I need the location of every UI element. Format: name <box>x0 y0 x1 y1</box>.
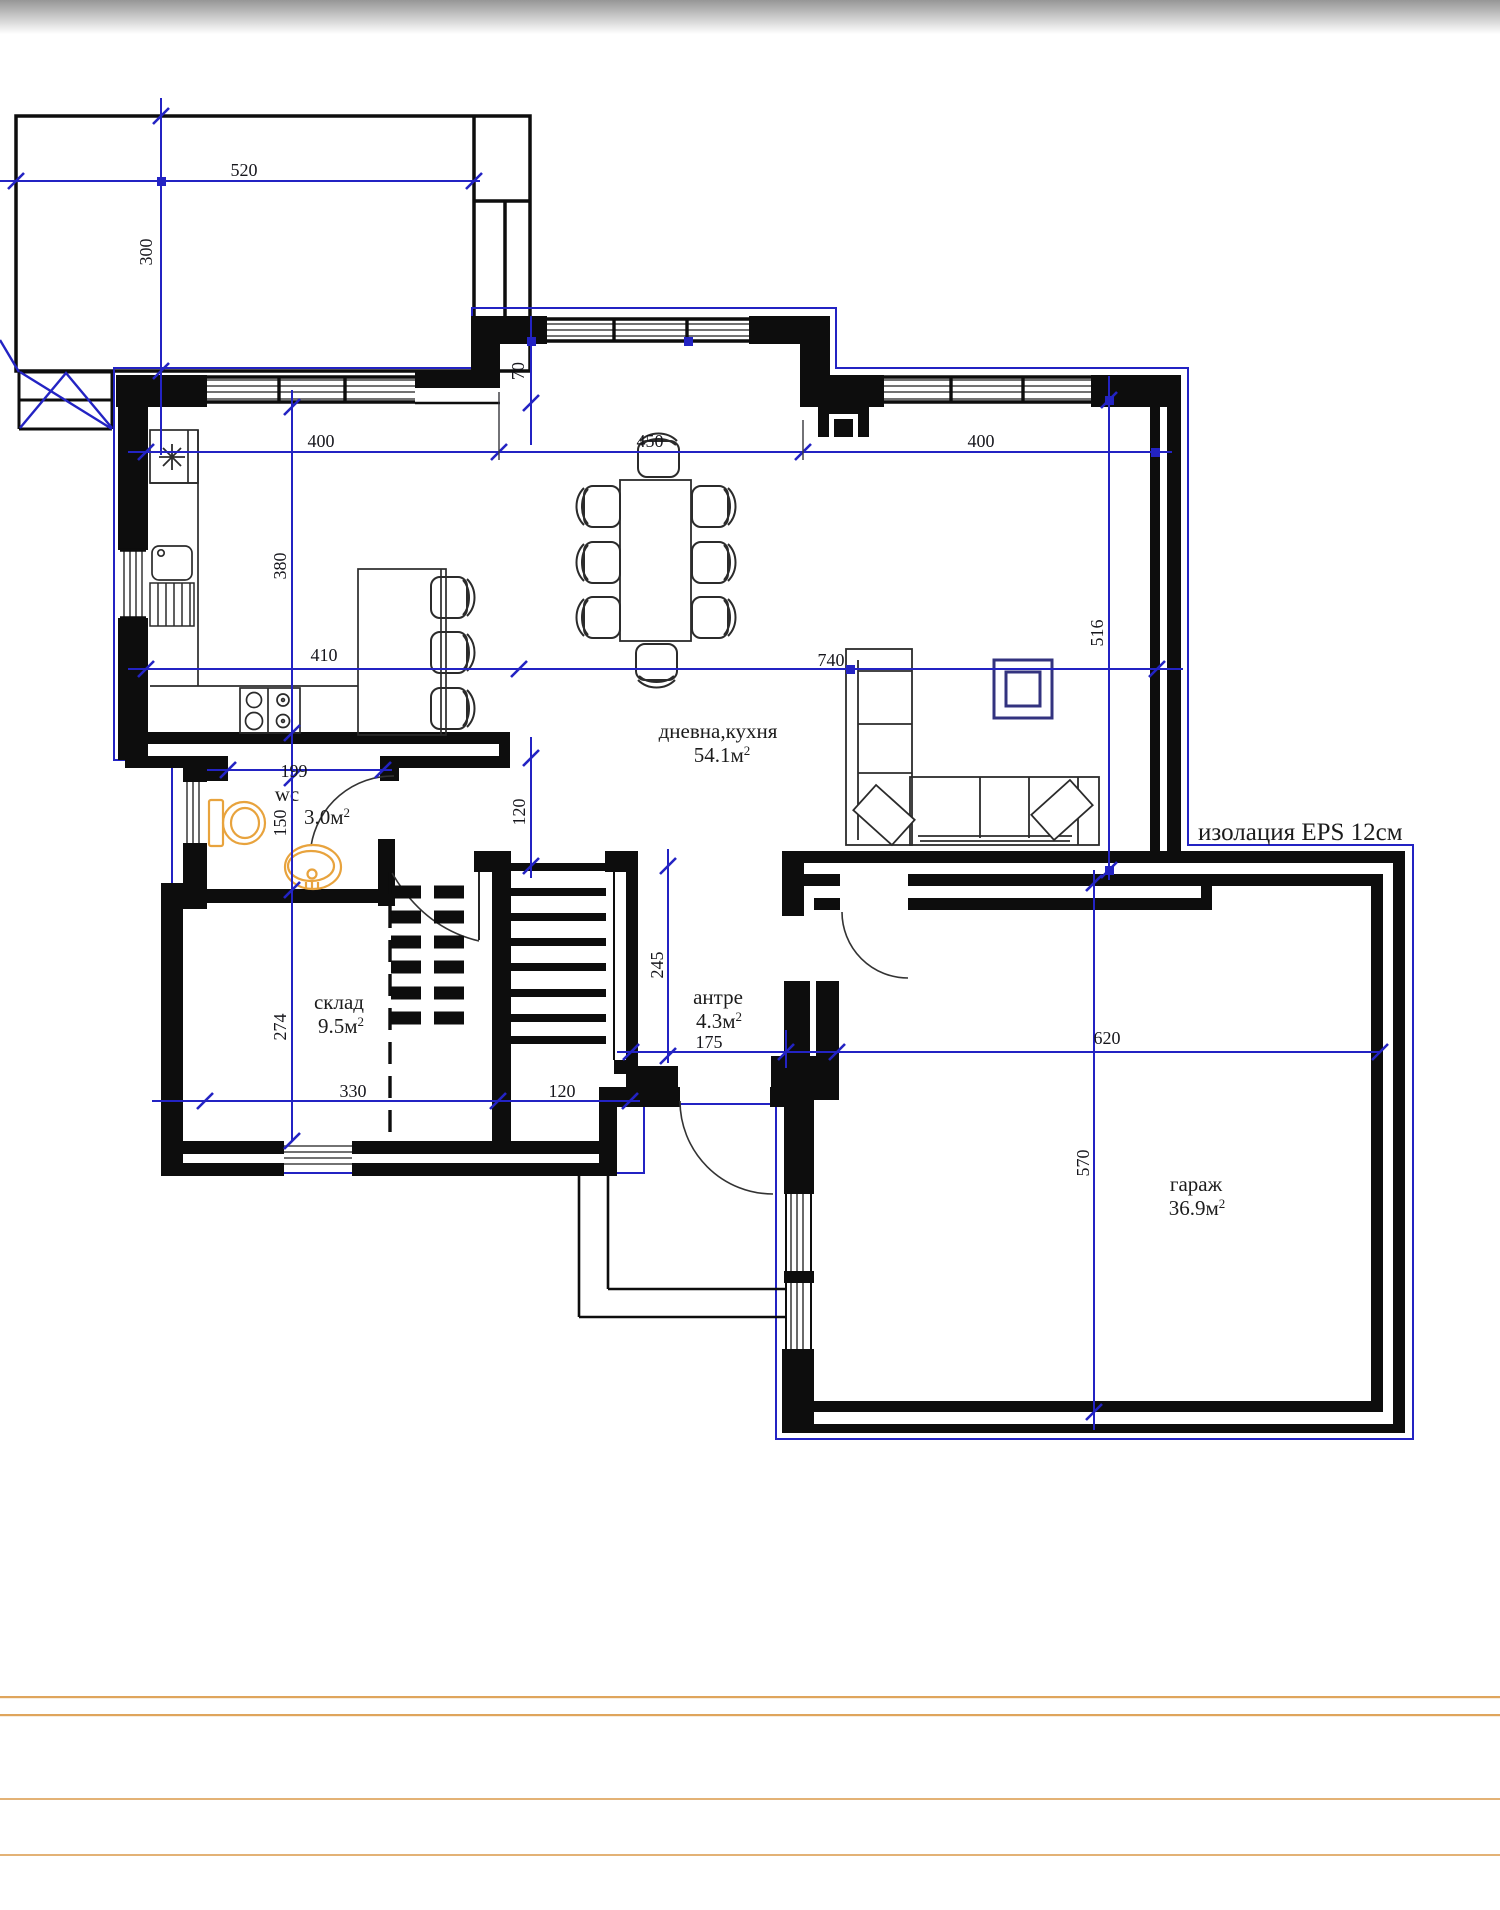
svg-text:520: 520 <box>231 160 258 180</box>
svg-text:склад: склад <box>314 990 364 1014</box>
svg-text:380: 380 <box>270 553 290 580</box>
svg-text:740: 740 <box>818 650 845 670</box>
svg-text:620: 620 <box>1094 1028 1121 1048</box>
svg-text:wc: wc <box>275 782 300 806</box>
svg-text:антре: антре <box>693 985 743 1009</box>
svg-text:54.1м2: 54.1м2 <box>694 743 751 767</box>
svg-text:120: 120 <box>509 799 529 826</box>
svg-text:36.9м2: 36.9м2 <box>1169 1196 1226 1220</box>
svg-text:175: 175 <box>696 1032 723 1052</box>
svg-text:410: 410 <box>311 645 338 665</box>
svg-text:4.3м2: 4.3м2 <box>696 1009 742 1033</box>
svg-text:дневна,кухня: дневна,кухня <box>659 719 778 743</box>
svg-text:9.5м2: 9.5м2 <box>318 1014 364 1038</box>
svg-text:330: 330 <box>340 1081 367 1101</box>
svg-text:199: 199 <box>281 761 308 781</box>
svg-text:гараж: гараж <box>1170 1172 1223 1196</box>
svg-text:570: 570 <box>1073 1150 1093 1177</box>
svg-text:245: 245 <box>647 952 667 979</box>
svg-text:изолация EPS 12см: изолация EPS 12см <box>1198 819 1403 846</box>
svg-text:150: 150 <box>270 810 290 837</box>
svg-text:274: 274 <box>270 1014 290 1041</box>
svg-text:120: 120 <box>549 1081 576 1101</box>
svg-text:70: 70 <box>508 362 528 380</box>
svg-text:516: 516 <box>1087 620 1107 647</box>
svg-text:300: 300 <box>136 239 156 266</box>
svg-text:450: 450 <box>637 431 664 451</box>
svg-text:3.0м2: 3.0м2 <box>304 805 350 829</box>
svg-text:400: 400 <box>308 431 335 451</box>
svg-text:400: 400 <box>968 431 995 451</box>
